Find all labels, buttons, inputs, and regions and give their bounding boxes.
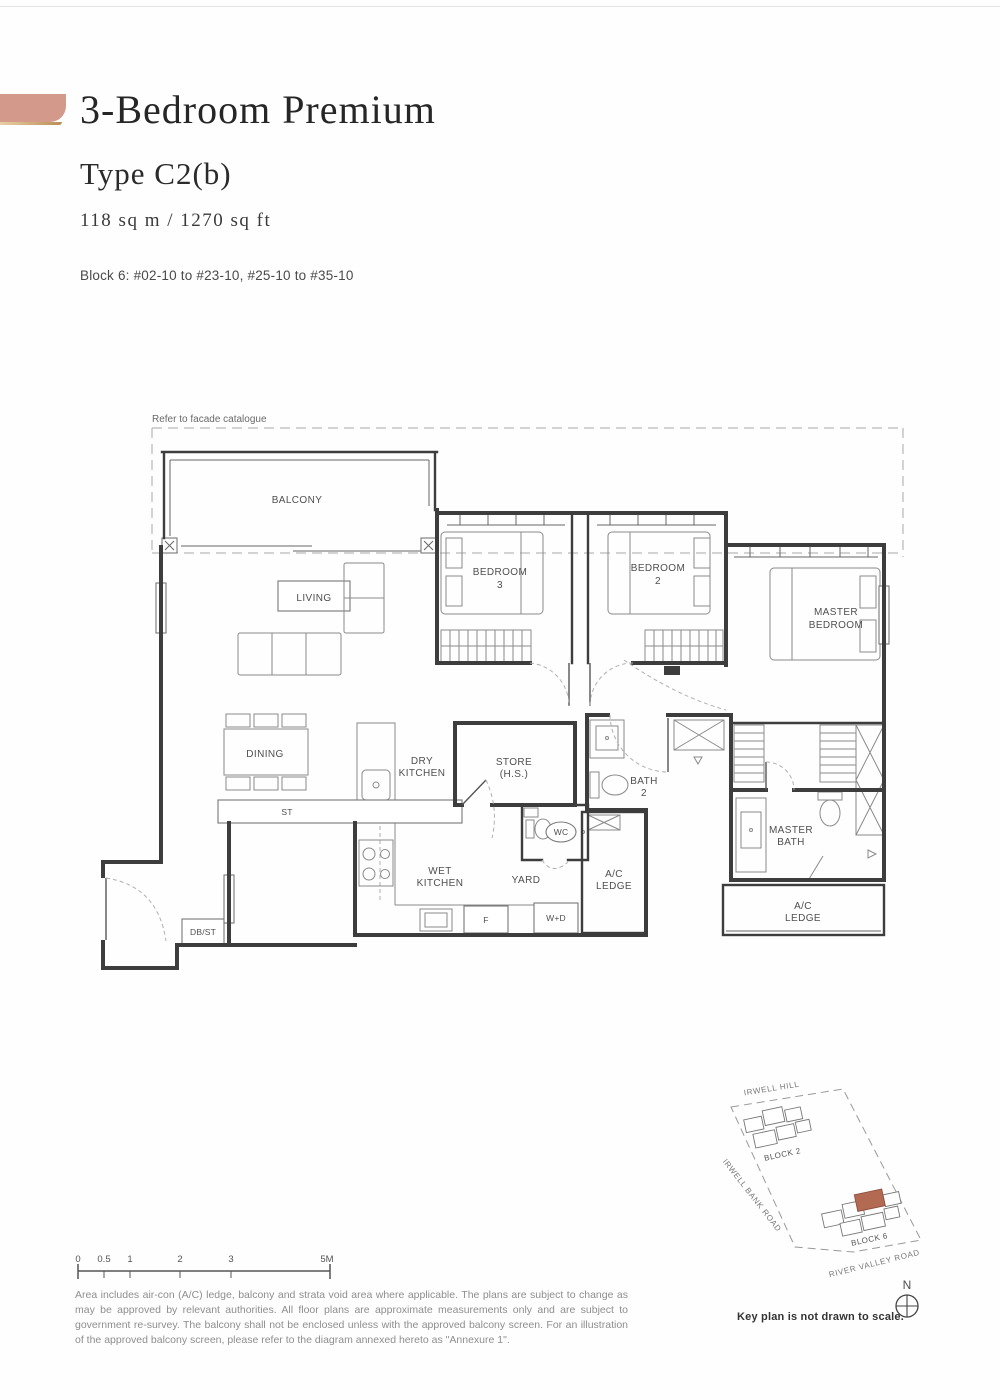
label-washer-dryer: W+D [546, 913, 566, 923]
highlighted-unit [854, 1189, 885, 1211]
kitchen-counters [357, 723, 578, 933]
label-living: LIVING [296, 593, 331, 604]
hob [359, 840, 393, 886]
svg-text:2: 2 [641, 788, 647, 799]
north-label: N [903, 1278, 912, 1292]
wardrobe-master-left [734, 725, 764, 782]
label-ac-ledge-mid: A/C [605, 869, 623, 880]
svg-text:3: 3 [497, 580, 503, 591]
scale-tick-5m: 5M [320, 1254, 333, 1265]
walls-layer [103, 452, 884, 968]
label-river-valley-road: RIVER VALLEY ROAD [828, 1248, 921, 1279]
svg-text:2: 2 [655, 576, 661, 587]
label-yard: YARD [512, 875, 541, 886]
door-tab [664, 666, 680, 675]
label-wc: WC [554, 827, 569, 837]
label-dining: DINING [246, 749, 283, 760]
key-plan: BLOCK 2 BLOCK 6 IRWELL HILL IRWELL BANK … [721, 1080, 921, 1323]
label-db-st: DB/ST [190, 927, 216, 937]
master-bath-fixtures [736, 725, 884, 879]
brochure-page: 3-Bedroom Premium Type C2(b) 118 sq m / … [0, 0, 1000, 1400]
master-shower [856, 725, 884, 835]
label-fridge: F [483, 915, 488, 925]
label-store: STORE [496, 757, 532, 768]
wardrobe-bedroom2 [645, 630, 723, 663]
st-counter [218, 800, 462, 823]
label-bath2: BATH [630, 776, 658, 787]
label-master-bath: MASTER [769, 825, 813, 836]
label-dry-kitchen: DRY [411, 756, 433, 767]
label-balcony: BALCONY [272, 495, 323, 506]
label-master-bedroom: MASTER [814, 607, 858, 618]
label-block2: BLOCK 2 [763, 1146, 801, 1163]
scale-tick-0: 0 [75, 1254, 80, 1265]
disclaimer-text: Area includes air-con (A/C) ledge, balco… [75, 1288, 628, 1348]
label-block6: BLOCK 6 [850, 1231, 888, 1248]
svg-text:KITCHEN: KITCHEN [399, 768, 446, 779]
wardrobe-master-right [820, 725, 856, 782]
room-labels: BALCONY LIVING BEDROOM 3 BEDROOM 2 MASTE… [190, 495, 863, 937]
svg-text:LEDGE: LEDGE [596, 881, 632, 892]
floor-plan-canvas: Refer to facade catalogue [0, 0, 1000, 1400]
label-bedroom2: BEDROOM [631, 563, 685, 574]
scale-tick-1: 1 [127, 1254, 132, 1265]
svg-text:(H.S.): (H.S.) [500, 769, 529, 780]
svg-text:BATH: BATH [777, 837, 805, 848]
svg-text:LEDGE: LEDGE [785, 913, 821, 924]
scale-tick-2: 2 [177, 1254, 182, 1265]
sofa [238, 633, 341, 675]
key-plan-caption: Key plan is not drawn to scale. [737, 1311, 904, 1323]
label-bedroom3: BEDROOM [473, 567, 527, 578]
label-wet-kitchen: WET [428, 866, 451, 877]
scale-tick-05: 0.5 [97, 1254, 110, 1265]
label-irwell-bank-road: IRWELL BANK ROAD [721, 1157, 783, 1233]
facade-note: Refer to facade catalogue [152, 414, 267, 425]
svg-text:KITCHEN: KITCHEN [417, 878, 464, 889]
key-plan-block2 [743, 1102, 813, 1150]
key-plan-block6 [819, 1186, 905, 1240]
facade-boundary: Refer to facade catalogue [152, 414, 903, 557]
wardrobe-bedroom3 [441, 630, 531, 663]
label-ac-ledge-bottom: A/C [794, 901, 812, 912]
label-irwell-hill: IRWELL HILL [743, 1080, 800, 1098]
svg-text:BEDROOM: BEDROOM [809, 620, 863, 631]
scale-bar: 0 0.5 1 2 3 5M [75, 1254, 333, 1279]
label-st: ST [281, 807, 292, 817]
scale-tick-3: 3 [228, 1254, 233, 1265]
ac-vent [588, 815, 620, 830]
